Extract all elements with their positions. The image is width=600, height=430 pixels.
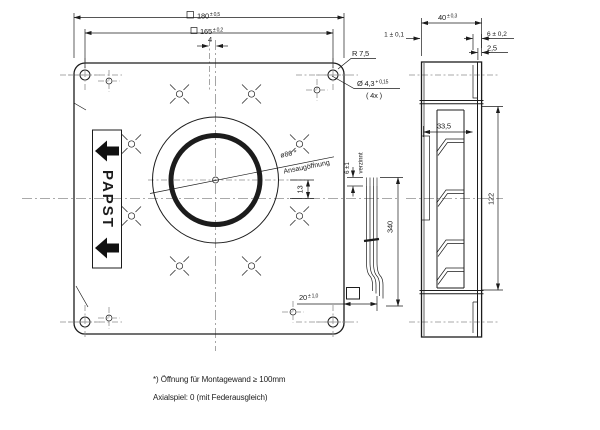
dim-plate-offset-label: 1 ± 0,1 [384, 32, 404, 39]
dim-strip-length-label: 6 ±1 [345, 162, 351, 174]
strip-finish-label: verzinnt [359, 152, 365, 173]
dim-axis-offset-x-label: 4 [208, 35, 212, 44]
dim-cable-length-label: 340 [386, 221, 395, 233]
corner-radius-label: R 7,5 [352, 49, 369, 58]
sheet-background [0, 0, 600, 430]
dim-impeller-width-label: 33,5 [437, 122, 451, 131]
footnote-axial-play: Axialspiel: 0 (mit Federausgleich) [153, 393, 268, 402]
brand-text: PAPST [99, 170, 116, 229]
mounting-hole-count: ( 4x ) [366, 91, 383, 100]
dim-axis-offset-y-label: 13 [296, 186, 305, 194]
technical-drawing-fan: PAPST 180± 0,5 165± 0,2 4 R 7,5 Ø 4, [0, 0, 600, 430]
footnote-opening: *) Öffnung für Montagewand ≥ 100mm [153, 375, 286, 384]
dim-flange-label: 6 ± 0,2 [487, 31, 507, 38]
dim-impeller-diameter-label: 122 [487, 193, 496, 205]
dim-plate-thickness-label: 2,5 [487, 44, 497, 53]
